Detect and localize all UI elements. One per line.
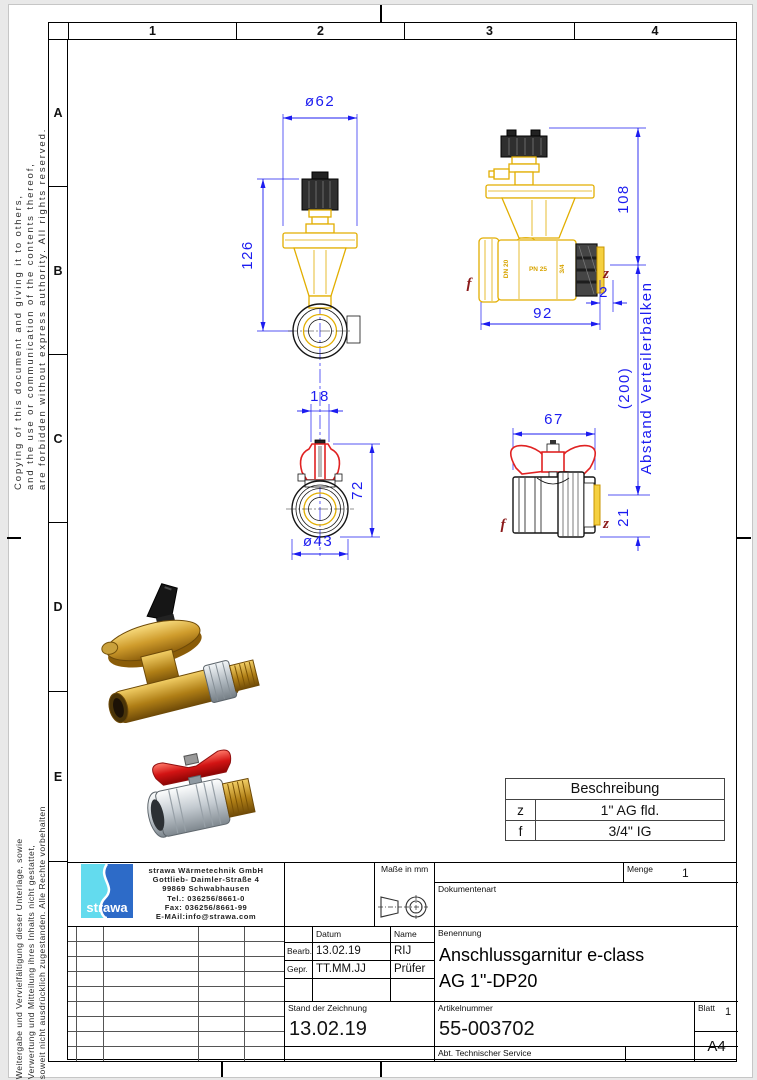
company-street: Gottlieb- Daimler-Straße 4 — [130, 875, 282, 884]
title-block: strawa strawa Wärmetechnik GmbH Gottlieb… — [67, 862, 737, 1060]
menge-value: 1 — [682, 866, 689, 880]
benennung-cell: Benennung Anschlussgarnitur e-class AG 1… — [434, 926, 738, 1001]
artikel-cell: Artikelnummer 55-003702 — [434, 1001, 694, 1046]
dim-front-height: 126 — [239, 240, 256, 270]
part-title-line1: Anschlussgarnitur e-class — [439, 945, 644, 966]
artikel-value: 55-003702 — [439, 1018, 535, 1041]
empty-cell-top — [434, 863, 623, 882]
company-email: E-MAil:info@strawa.com — [130, 912, 282, 921]
product-photo-brass-valve — [83, 567, 260, 728]
company-tel: Tel.: 036256/8661-0 — [130, 894, 282, 903]
ball-valve-front-view: 18 72 ø43 — [286, 388, 380, 560]
dim-side-height: 108 — [615, 184, 632, 214]
dokumentenart-label: Dokumentenart — [438, 884, 496, 894]
product-photo-ball-valve — [138, 744, 256, 839]
gepr-label: Gepr. — [287, 964, 308, 974]
legend-value-f: 3/4" IG — [536, 821, 724, 841]
datum-label: Datum — [316, 929, 341, 939]
part-title-line2: AG 1"-DP20 — [439, 971, 537, 992]
company-address: strawa Wärmetechnik GmbH Gottlieb- Daiml… — [130, 866, 282, 921]
dim-ball-height: 72 — [349, 480, 366, 500]
bearb-label: Bearb. — [287, 946, 312, 956]
dim-side-length: 92 — [533, 305, 553, 322]
stand-cell: Stand der Zeichnung 13.02.19 — [284, 1001, 434, 1046]
front-view-valve: ø62 126 — [239, 93, 360, 556]
legend-header: Beschreibung — [506, 779, 724, 799]
mark-pn25: PN 25 — [529, 266, 547, 273]
blatt-cell: Blatt 1 — [694, 1001, 738, 1031]
stand-value: 13.02.19 — [289, 1018, 367, 1041]
dokumentenart-cell: Dokumentenart — [434, 882, 738, 926]
projection-symbol — [378, 894, 432, 922]
dim-neck: 18 — [310, 388, 330, 405]
dim-front-width: ø62 — [305, 93, 335, 110]
legend-row-f: f 3/4" IG — [506, 820, 724, 841]
abt-empty-cell — [625, 1046, 738, 1061]
abt-label: Abt. Technischer Service — [438, 1048, 531, 1058]
company-name: strawa Wärmetechnik GmbH — [130, 866, 282, 875]
legend-key-z: z — [506, 800, 536, 820]
side-view-valve: DR DN 20 PN 25 3/4 f z 108 (200) Abstand… — [467, 128, 656, 495]
bearb-name: RIJ — [394, 945, 411, 957]
strawa-logo: strawa — [81, 864, 133, 918]
abt-cell: Abt. Technischer Service — [434, 1046, 625, 1061]
company-city: 99869 Schwabhausen — [130, 884, 282, 893]
dim-ball-offset: 21 — [615, 507, 632, 527]
drawing-sheet: Copying of this document and giving it t… — [0, 0, 757, 1080]
dim-ball-diameter: ø43 — [303, 533, 333, 550]
empty-cell — [284, 863, 374, 926]
mark-dn20: DN 20 — [503, 259, 510, 278]
dim-ball-length: 67 — [544, 411, 564, 428]
legend-table: Beschreibung z 1" AG fld. f 3/4" IG — [505, 778, 725, 841]
company-fax: Fax: 036256/8661-99 — [130, 903, 282, 912]
gepr-name: Prüfer — [394, 963, 425, 975]
logo-wordmark: strawa — [86, 900, 128, 915]
units-label: Maße in mm — [381, 864, 428, 874]
ball-valve-side-view: 67 f z 21 — [501, 411, 651, 551]
units-cell: Maße in mm — [374, 863, 434, 926]
legend-value-z: 1" AG fld. — [536, 800, 724, 820]
port-label-z2: z — [602, 516, 609, 532]
gepr-date: TT.MM.JJ — [316, 963, 366, 975]
benennung-label: Benennung — [438, 928, 482, 938]
artikel-label: Artikelnummer — [438, 1003, 493, 1013]
menge-label: Menge — [627, 864, 653, 874]
port-label-f2: f — [501, 517, 508, 533]
dim-spacing-value: (200) — [616, 367, 633, 410]
stand-empty-row — [284, 1046, 434, 1061]
legend-row-z: z 1" AG fld. — [506, 799, 724, 820]
company-cell: strawa strawa Wärmetechnik GmbH Gottlieb… — [68, 863, 284, 926]
bearb-date: 13.02.19 — [316, 945, 361, 957]
port-label-z: z — [602, 266, 609, 282]
port-label-f: f — [467, 276, 474, 292]
legend-key-f: f — [506, 821, 536, 841]
dim-washer: 2 — [599, 284, 609, 301]
name-label: Name — [394, 929, 417, 939]
dim-spacing-label: Abstand Verteilerbalken — [638, 282, 655, 475]
menge-cell: Menge 1 — [623, 863, 738, 882]
revision-table — [68, 926, 284, 1061]
blatt-value: 1 — [725, 1006, 731, 1018]
approval-grid: Datum Name Bearb. 13.02.19 RIJ Gepr. TT.… — [284, 926, 434, 1001]
stand-label: Stand der Zeichnung — [288, 1003, 367, 1013]
blatt-label: Blatt — [698, 1003, 715, 1013]
mark-size: 3/4 — [559, 264, 566, 273]
